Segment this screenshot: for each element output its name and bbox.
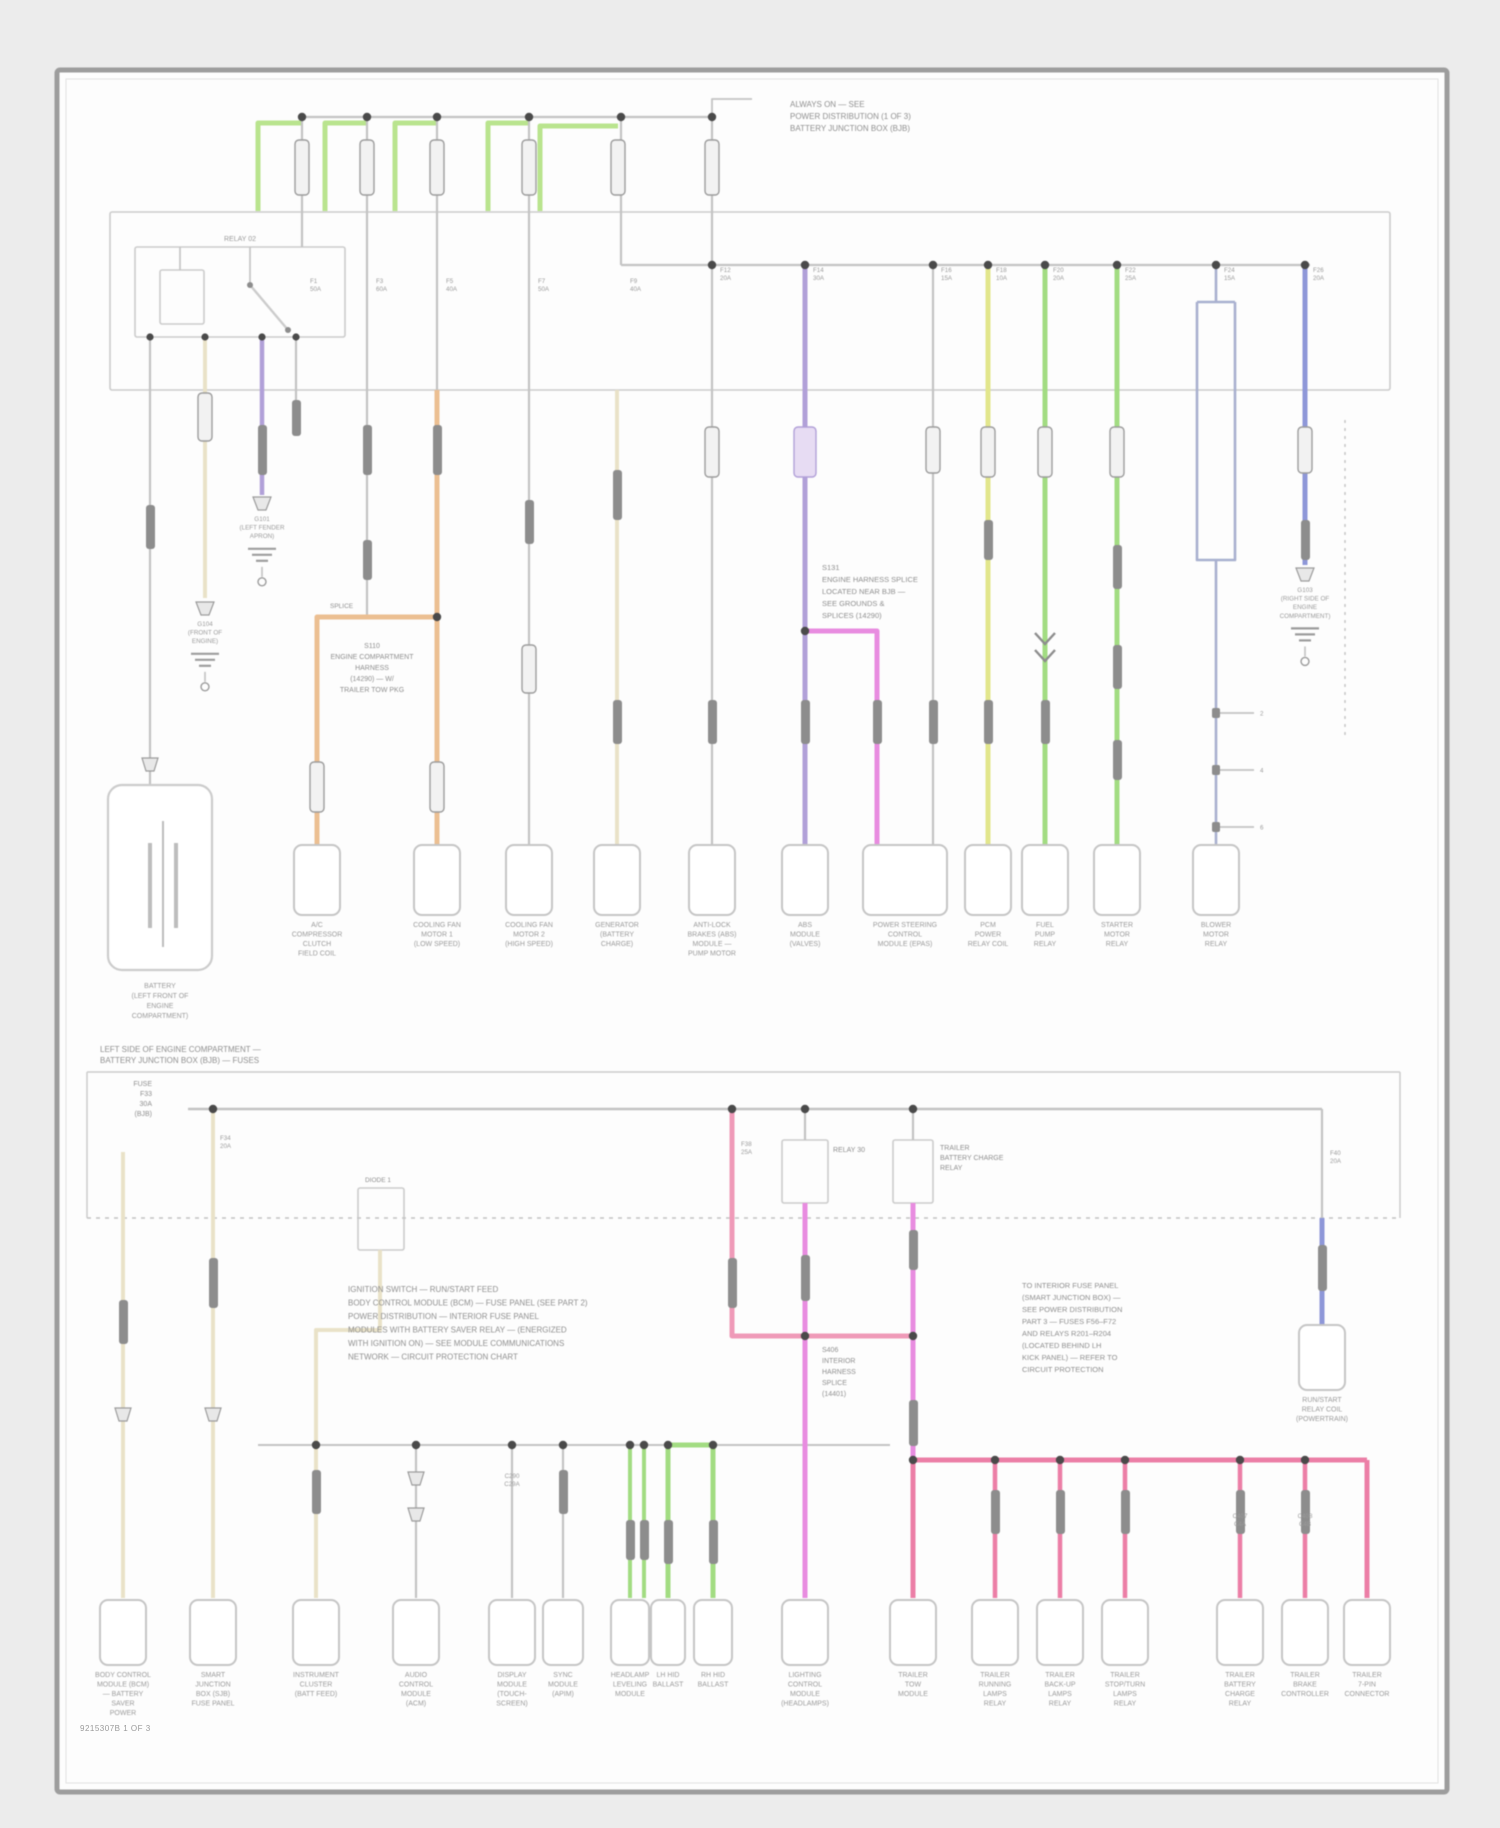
connector-band — [929, 700, 938, 744]
annotation: SPLICES (14290) — [822, 611, 882, 620]
ground-label: COMPARTMENT) — [1280, 613, 1331, 620]
annotation: TO INTERIOR FUSE PANEL — [1022, 1281, 1118, 1290]
pin-tick-pad — [1212, 822, 1220, 832]
annotation: DIODE 1 — [365, 1177, 391, 1184]
fuse — [198, 393, 212, 441]
connector-band — [559, 1470, 568, 1514]
component-label: (HEADLAMPS) — [781, 1701, 829, 1708]
component-label: BATTERY — [1224, 1682, 1256, 1689]
fuse-label: 60A — [376, 286, 388, 293]
component — [1022, 845, 1068, 915]
battery-label: ENGINE — [147, 1003, 174, 1010]
annotation: (LOCATED BEHIND LH — [1022, 1341, 1101, 1350]
fuse-label: 10A — [996, 275, 1008, 282]
junction-dot — [728, 1105, 736, 1113]
fuse-label: F34 — [220, 1135, 231, 1142]
connector-band — [709, 1520, 718, 1564]
fuse-label: F7 — [538, 278, 546, 285]
fuse-label: C290 — [505, 1473, 520, 1480]
component — [1282, 1600, 1328, 1665]
wiring-diagram: G104(FRONT OFENGINE)G101(LEFT FENDERAPRO… — [0, 0, 1500, 1828]
component-label: COOLING FAN — [413, 922, 461, 929]
component-label: GENERATOR — [595, 922, 639, 929]
relay-pin — [146, 333, 153, 340]
component — [651, 1600, 685, 1665]
component-label: (BATT FEED) — [295, 1691, 338, 1698]
component-label: A/C — [311, 922, 323, 929]
fuse-label: 15A — [941, 275, 953, 282]
component-label: PCM — [980, 922, 996, 929]
junction-dot — [1301, 1456, 1309, 1464]
junction-dot — [433, 613, 441, 621]
junction-dot — [909, 1332, 917, 1340]
junction-dot — [991, 1456, 999, 1464]
annotation: S406 — [822, 1347, 838, 1354]
junction-dot — [617, 113, 625, 121]
junction-dot — [298, 113, 306, 121]
connector-band — [1301, 520, 1310, 560]
annotation: IGNITION SWITCH — RUN/START FEED — [348, 1285, 498, 1294]
component-label: FIELD COIL — [298, 951, 336, 958]
fuse-label: C4B — [1299, 1521, 1311, 1528]
connector-band — [873, 700, 882, 744]
relay-contact — [247, 282, 253, 288]
component-label: TRAILER — [898, 1672, 928, 1679]
component — [863, 845, 947, 915]
connector-band — [728, 1258, 737, 1308]
component — [965, 845, 1011, 915]
connector-band — [909, 1230, 918, 1270]
component-label: LH HID — [657, 1672, 680, 1679]
component-label: MODULE (BCM) — [97, 1682, 149, 1689]
fuse-label: 50A — [310, 286, 322, 293]
junction-dot — [909, 1105, 917, 1113]
component — [1102, 1600, 1148, 1665]
component-label: MODULE — [898, 1691, 928, 1698]
component — [1299, 1325, 1345, 1390]
component — [1094, 845, 1140, 915]
connector-band — [525, 500, 534, 544]
fuse-label: F3 — [376, 278, 384, 285]
fuse-label: F24 — [1224, 267, 1235, 274]
component — [890, 1600, 936, 1665]
ground-label: G103 — [1297, 587, 1313, 594]
component-label: DISPLAY — [497, 1672, 526, 1679]
component-label: LEVELING — [613, 1682, 647, 1689]
fuse-label: C408 — [1298, 1513, 1313, 1520]
fuse-label: F12 — [720, 267, 731, 274]
component-label: MODULE — [401, 1691, 431, 1698]
component-label: BLOWER — [1201, 922, 1231, 929]
component-label: BODY CONTROL — [95, 1672, 151, 1679]
component-label: TRAILER — [1290, 1672, 1320, 1679]
component-label: MODULE — [548, 1682, 578, 1689]
annotation: (SMART JUNCTION BOX) — — [1022, 1293, 1121, 1302]
annotation: WITH IGNITION ON) — SEE MODULE COMMUNICA… — [348, 1339, 564, 1348]
fuse-label: F16 — [941, 267, 952, 274]
annotation: INTERIOR — [822, 1358, 855, 1365]
fuse — [1298, 427, 1312, 473]
component-label: TOW — [905, 1682, 922, 1689]
component-label: ANTI-LOCK — [693, 922, 731, 929]
annotation: MODULES WITH BATTERY SAVER RELAY — (ENER… — [348, 1326, 567, 1335]
relay-contact — [285, 327, 291, 333]
component-label: (VALVES) — [790, 941, 821, 948]
component-label: STARTER — [1101, 922, 1133, 929]
fuse — [295, 140, 309, 195]
component-label: CONNECTOR — [1345, 1691, 1390, 1698]
component-label: LAMPS — [1113, 1691, 1137, 1698]
annotation: (14290) — W/ — [350, 676, 394, 683]
battery-label: BATTERY — [144, 983, 176, 990]
component-label: MODULE — [790, 932, 820, 939]
component-label: FUEL — [1036, 922, 1054, 929]
annotation: S131 — [822, 563, 840, 572]
annotation: TRAILER — [940, 1145, 970, 1152]
component-label: SCREEN) — [496, 1701, 528, 1708]
component-label: TRAILER — [1225, 1672, 1255, 1679]
fuse — [522, 645, 536, 693]
annotation: FUSE — [133, 1081, 152, 1088]
junction-dot — [801, 1332, 809, 1340]
battery-symbol — [108, 785, 212, 970]
junction-dot — [664, 1441, 672, 1449]
fuse — [360, 140, 374, 195]
fuse-label: 15A — [1224, 275, 1236, 282]
wiring-diagram-page: G104(FRONT OFENGINE)G101(LEFT FENDERAPRO… — [0, 0, 1500, 1828]
fuse — [1110, 427, 1124, 477]
component — [689, 845, 735, 915]
junction-dot — [801, 261, 809, 269]
fuse — [705, 427, 719, 477]
component — [694, 1600, 732, 1665]
fuse — [522, 140, 536, 195]
fuse — [430, 762, 444, 812]
ground-label: (LEFT FENDER — [239, 525, 284, 532]
component-label: RELAY COIL — [968, 941, 1009, 948]
component-label: RH HID — [701, 1672, 725, 1679]
component-label: LAMPS — [1048, 1691, 1072, 1698]
fuse-label: F5 — [446, 278, 454, 285]
ground-label: APRON) — [250, 533, 275, 540]
pin-tick-label: 4 — [1260, 768, 1264, 775]
component — [1344, 1600, 1390, 1665]
annotation: BODY CONTROL MODULE (BCM) — FUSE PANEL (… — [348, 1299, 588, 1308]
component-label: MODULE — [615, 1691, 645, 1698]
annotation: ALWAYS ON — SEE — [790, 100, 865, 109]
annotation: ENGINE COMPARTMENT — [331, 654, 415, 661]
connector-band — [708, 700, 717, 744]
component-label: CHARGE) — [601, 941, 633, 948]
ground-label: ENGINE — [1293, 604, 1317, 611]
fuse-label: C407 — [1233, 1513, 1248, 1520]
component-label: STOP/TURN — [1105, 1682, 1145, 1689]
component-label: FUSE PANEL — [191, 1701, 234, 1708]
component-label: BALLAST — [698, 1682, 729, 1689]
component-label: POWER — [975, 932, 1001, 939]
component-label: COMPRESSOR — [292, 932, 343, 939]
component — [1193, 845, 1239, 915]
fuse — [705, 140, 719, 195]
connector-band — [1121, 1490, 1130, 1534]
fuse-label: 20A — [220, 1143, 232, 1150]
fuse-label: F9 — [630, 278, 638, 285]
component-label: BALLAST — [653, 1682, 684, 1689]
annotation: S110 — [364, 643, 380, 650]
annotation: 30A — [140, 1101, 153, 1108]
component — [294, 845, 340, 915]
connector-band — [146, 505, 155, 549]
component-label: TRAILER — [1352, 1672, 1382, 1679]
annotation: HARNESS — [355, 665, 389, 672]
connector-band — [258, 425, 267, 475]
pin-tick-label: 6 — [1260, 825, 1264, 832]
annotation: (BJB) — [135, 1111, 153, 1118]
component-label: MODULE — [497, 1682, 527, 1689]
fuse-label: F18 — [996, 267, 1007, 274]
component-label: RELAY — [1034, 941, 1057, 948]
component-label: MOTOR 2 — [513, 932, 545, 939]
annotation: RELAY 30 — [833, 1147, 865, 1154]
component — [972, 1600, 1018, 1665]
component — [1217, 1600, 1263, 1665]
component-label: RELAY — [984, 1701, 1007, 1708]
component-label: CONTROL — [788, 1682, 822, 1689]
annotation: POWER DISTRIBUTION (1 OF 3) — [790, 112, 911, 121]
annotation: HARNESS — [822, 1369, 856, 1376]
connector-band — [991, 1490, 1000, 1534]
component — [543, 1600, 583, 1665]
component-label: TRAILER — [1045, 1672, 1075, 1679]
annotation: LEFT SIDE OF ENGINE COMPARTMENT — — [100, 1045, 261, 1054]
fuse-label: 20A — [720, 275, 732, 282]
component-label: (TOUCH- — [497, 1691, 527, 1698]
annotation: SEE POWER DISTRIBUTION — [1022, 1305, 1122, 1314]
fuse — [1038, 427, 1052, 477]
fuse-label: 20A — [1313, 275, 1325, 282]
junction-dot — [412, 1441, 420, 1449]
junction-dot — [508, 1441, 516, 1449]
junction-dot — [984, 261, 992, 269]
connector-band — [801, 700, 810, 744]
fuse-label: F20 — [1053, 267, 1064, 274]
fuse-label: F40 — [1330, 1150, 1341, 1157]
fuse-label: 30A — [813, 275, 825, 282]
component — [594, 845, 640, 915]
annotation: AND RELAYS R201–R204 — [1022, 1329, 1111, 1338]
junction-dot — [626, 1441, 634, 1449]
fuse-label: F26 — [1313, 267, 1324, 274]
component-label: PUMP — [1035, 932, 1056, 939]
fuse — [926, 427, 940, 473]
component — [393, 1600, 439, 1665]
connector-band — [613, 470, 622, 520]
fuse-label: F14 — [813, 267, 824, 274]
battery-label: COMPARTMENT) — [132, 1013, 189, 1020]
component — [293, 1600, 339, 1665]
pin-tick-label: 2 — [1260, 711, 1264, 718]
component-label: MOTOR — [1203, 932, 1229, 939]
junction-dot — [1056, 1456, 1064, 1464]
ground-label: G104 — [197, 621, 213, 628]
component — [489, 1600, 535, 1665]
component-label: MOTOR — [1104, 932, 1130, 939]
component-label: JUNCTION — [195, 1682, 230, 1689]
component-label: RELAY COIL — [1302, 1407, 1343, 1414]
annotation: POWER DISTRIBUTION — INTERIOR FUSE PANEL — [348, 1312, 540, 1321]
junction-dot — [209, 1105, 217, 1113]
connector-band — [613, 700, 622, 744]
component-label: TRAILER — [980, 1672, 1010, 1679]
annotation: SPLICE — [330, 603, 354, 610]
component-label: CONTROL — [399, 1682, 433, 1689]
fuse-label: 50A — [538, 286, 550, 293]
connector-band — [984, 520, 993, 560]
component-label: MODULE — — [693, 941, 732, 948]
component-label: BRAKE — [1293, 1682, 1317, 1689]
junction-dot — [708, 113, 716, 121]
component-label: LAMPS — [983, 1691, 1007, 1698]
component-label: (ACM) — [406, 1701, 426, 1708]
battery-label: (LEFT FRONT OF — [132, 993, 189, 1000]
connector-band — [1113, 645, 1122, 689]
junction-dot — [709, 1441, 717, 1449]
junction-dot — [909, 1456, 917, 1464]
component-label: (APIM) — [552, 1691, 574, 1698]
connector-band — [1113, 740, 1122, 780]
component-label: SAVER — [111, 1701, 134, 1708]
fuse-label: F1 — [310, 278, 318, 285]
component-label: COOLING FAN — [505, 922, 553, 929]
fuse-label: F22 — [1125, 267, 1136, 274]
ground-label: (FRONT OF — [188, 630, 222, 637]
ground-label: G101 — [254, 516, 270, 523]
annotation: TRAILER TOW PKG — [340, 687, 404, 694]
junction-dot — [640, 1441, 648, 1449]
component-label: TRAILER — [1110, 1672, 1140, 1679]
annotation: RELAY — [940, 1165, 963, 1172]
junction-dot — [708, 261, 716, 269]
connector-band — [312, 1470, 321, 1514]
connector-band — [433, 425, 442, 475]
fuse-label: F38 — [741, 1141, 752, 1148]
connector-band — [363, 425, 372, 475]
component-label: (LOW SPEED) — [414, 941, 460, 948]
component-label: HEADLAMP — [611, 1672, 650, 1679]
connector-band — [209, 1258, 218, 1308]
annotation: NETWORK — CIRCUIT PROTECTION CHART — [348, 1353, 518, 1362]
component-label: RUN/START — [1302, 1397, 1342, 1404]
component-label: RELAY — [1229, 1701, 1252, 1708]
connector-band — [1113, 545, 1122, 589]
component-label: RELAY — [1106, 941, 1129, 948]
component-label: LIGHTING — [788, 1672, 821, 1679]
fuse-label: 20A — [1053, 275, 1065, 282]
component-label: BOX (SJB) — [196, 1691, 230, 1698]
fuse-label: 40A — [630, 286, 642, 293]
connector-band — [909, 1400, 918, 1446]
junction-dot — [801, 1105, 809, 1113]
junction-dot — [1301, 261, 1309, 269]
connector-band — [664, 1520, 673, 1564]
annotation: F33 — [140, 1091, 152, 1098]
connector-band — [801, 1255, 810, 1301]
component-label: RELAY — [1049, 1701, 1072, 1708]
component-label: PUMP MOTOR — [688, 951, 736, 958]
fuse-label: 25A — [1125, 275, 1137, 282]
fuse — [430, 140, 444, 195]
component-label: CLUTCH — [303, 941, 331, 948]
relay-pin — [258, 333, 265, 340]
component-label: INSTRUMENT — [293, 1672, 340, 1679]
annotation: ENGINE HARNESS SPLICE — [822, 575, 918, 584]
connector-band — [292, 400, 301, 436]
connector-band — [626, 1520, 635, 1560]
component-label: 7-PIN — [1358, 1682, 1376, 1689]
connector-band — [1318, 1245, 1327, 1291]
connector-band — [119, 1300, 128, 1344]
junction-dot — [1041, 261, 1049, 269]
fuse-label: C29A — [504, 1481, 520, 1488]
connector-band — [984, 700, 993, 744]
junction-dot — [801, 627, 809, 635]
junction-dot — [525, 113, 533, 121]
annotation: BATTERY JUNCTION BOX (BJB) — [790, 124, 910, 133]
connector-band — [640, 1520, 649, 1560]
component — [611, 1600, 649, 1665]
connector-band — [1056, 1490, 1065, 1534]
relay-pin — [292, 333, 299, 340]
diagram-id: 9215307B 1 OF 3 — [80, 1724, 151, 1733]
component-label: CONTROL — [888, 932, 922, 939]
annotation: SEE GROUNDS & — [822, 599, 885, 608]
pin-tick-pad — [1212, 708, 1220, 718]
junction-dot — [929, 261, 937, 269]
component-label: ABS — [798, 922, 812, 929]
component-label: CHARGE — [1225, 1691, 1255, 1698]
component — [782, 1600, 828, 1665]
annotation: PART 3 — FUSES F56–F72 — [1022, 1317, 1116, 1326]
annotation: (14401) — [822, 1391, 846, 1398]
annotation: BATTERY CHARGE — [940, 1155, 1004, 1162]
component-label: — BATTERY — [103, 1691, 144, 1698]
junction-dot — [1236, 1456, 1244, 1464]
annotation: CIRCUIT PROTECTION — [1022, 1365, 1104, 1374]
fuse — [611, 140, 625, 195]
junction-dot — [1113, 261, 1121, 269]
component-label: (POWERTRAIN) — [1296, 1416, 1348, 1423]
component-label: POWER — [110, 1710, 136, 1717]
junction-dot — [312, 1441, 320, 1449]
junction-dot — [363, 113, 371, 121]
component-label: SYNC — [553, 1672, 572, 1679]
fuse-label: C4A — [1234, 1521, 1247, 1528]
relay-label: RELAY 02 — [224, 236, 256, 243]
component-label: BACK-UP — [1044, 1682, 1075, 1689]
component — [100, 1600, 146, 1665]
component — [1037, 1600, 1083, 1665]
component-label: RUNNING — [979, 1682, 1012, 1689]
junction-dot — [559, 1441, 567, 1449]
junction-dot — [433, 113, 441, 121]
junction-dot — [1121, 1456, 1129, 1464]
component-label: POWER STEERING — [873, 922, 937, 929]
component-label: MODULE — [790, 1691, 820, 1698]
fuse — [310, 762, 324, 812]
annotation: SPLICE — [822, 1380, 847, 1387]
fuse-label: 25A — [741, 1149, 753, 1156]
ground-label: ENGINE) — [192, 638, 218, 645]
